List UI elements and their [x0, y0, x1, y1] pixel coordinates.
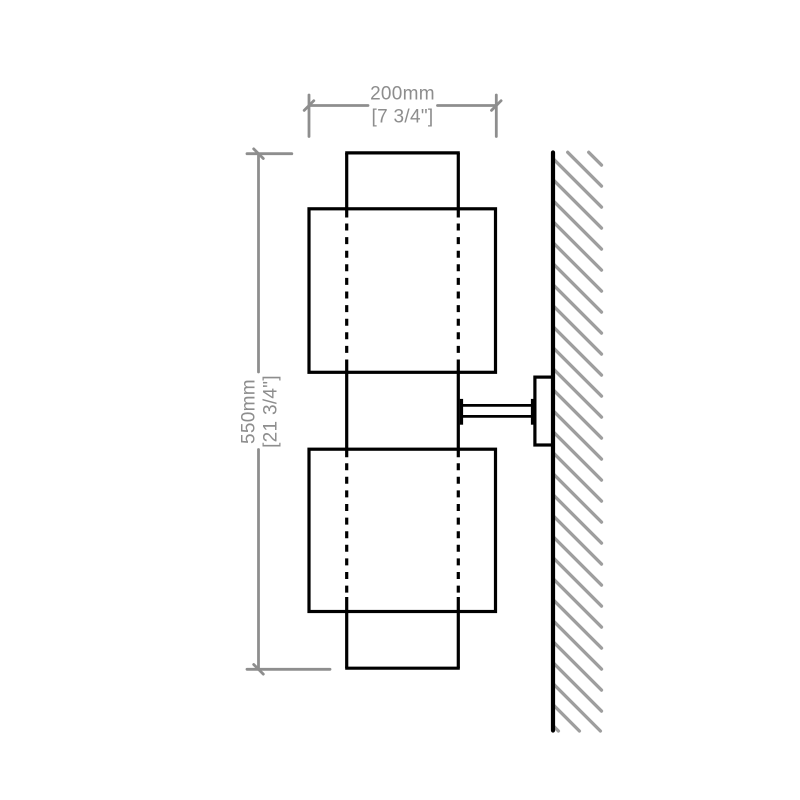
svg-text:[7 3/4"]: [7 3/4"]	[372, 106, 434, 127]
svg-text:550mm: 550mm	[239, 379, 260, 444]
svg-text:[21 3/4"]: [21 3/4"]	[261, 375, 282, 448]
svg-text:200mm: 200mm	[370, 84, 435, 105]
